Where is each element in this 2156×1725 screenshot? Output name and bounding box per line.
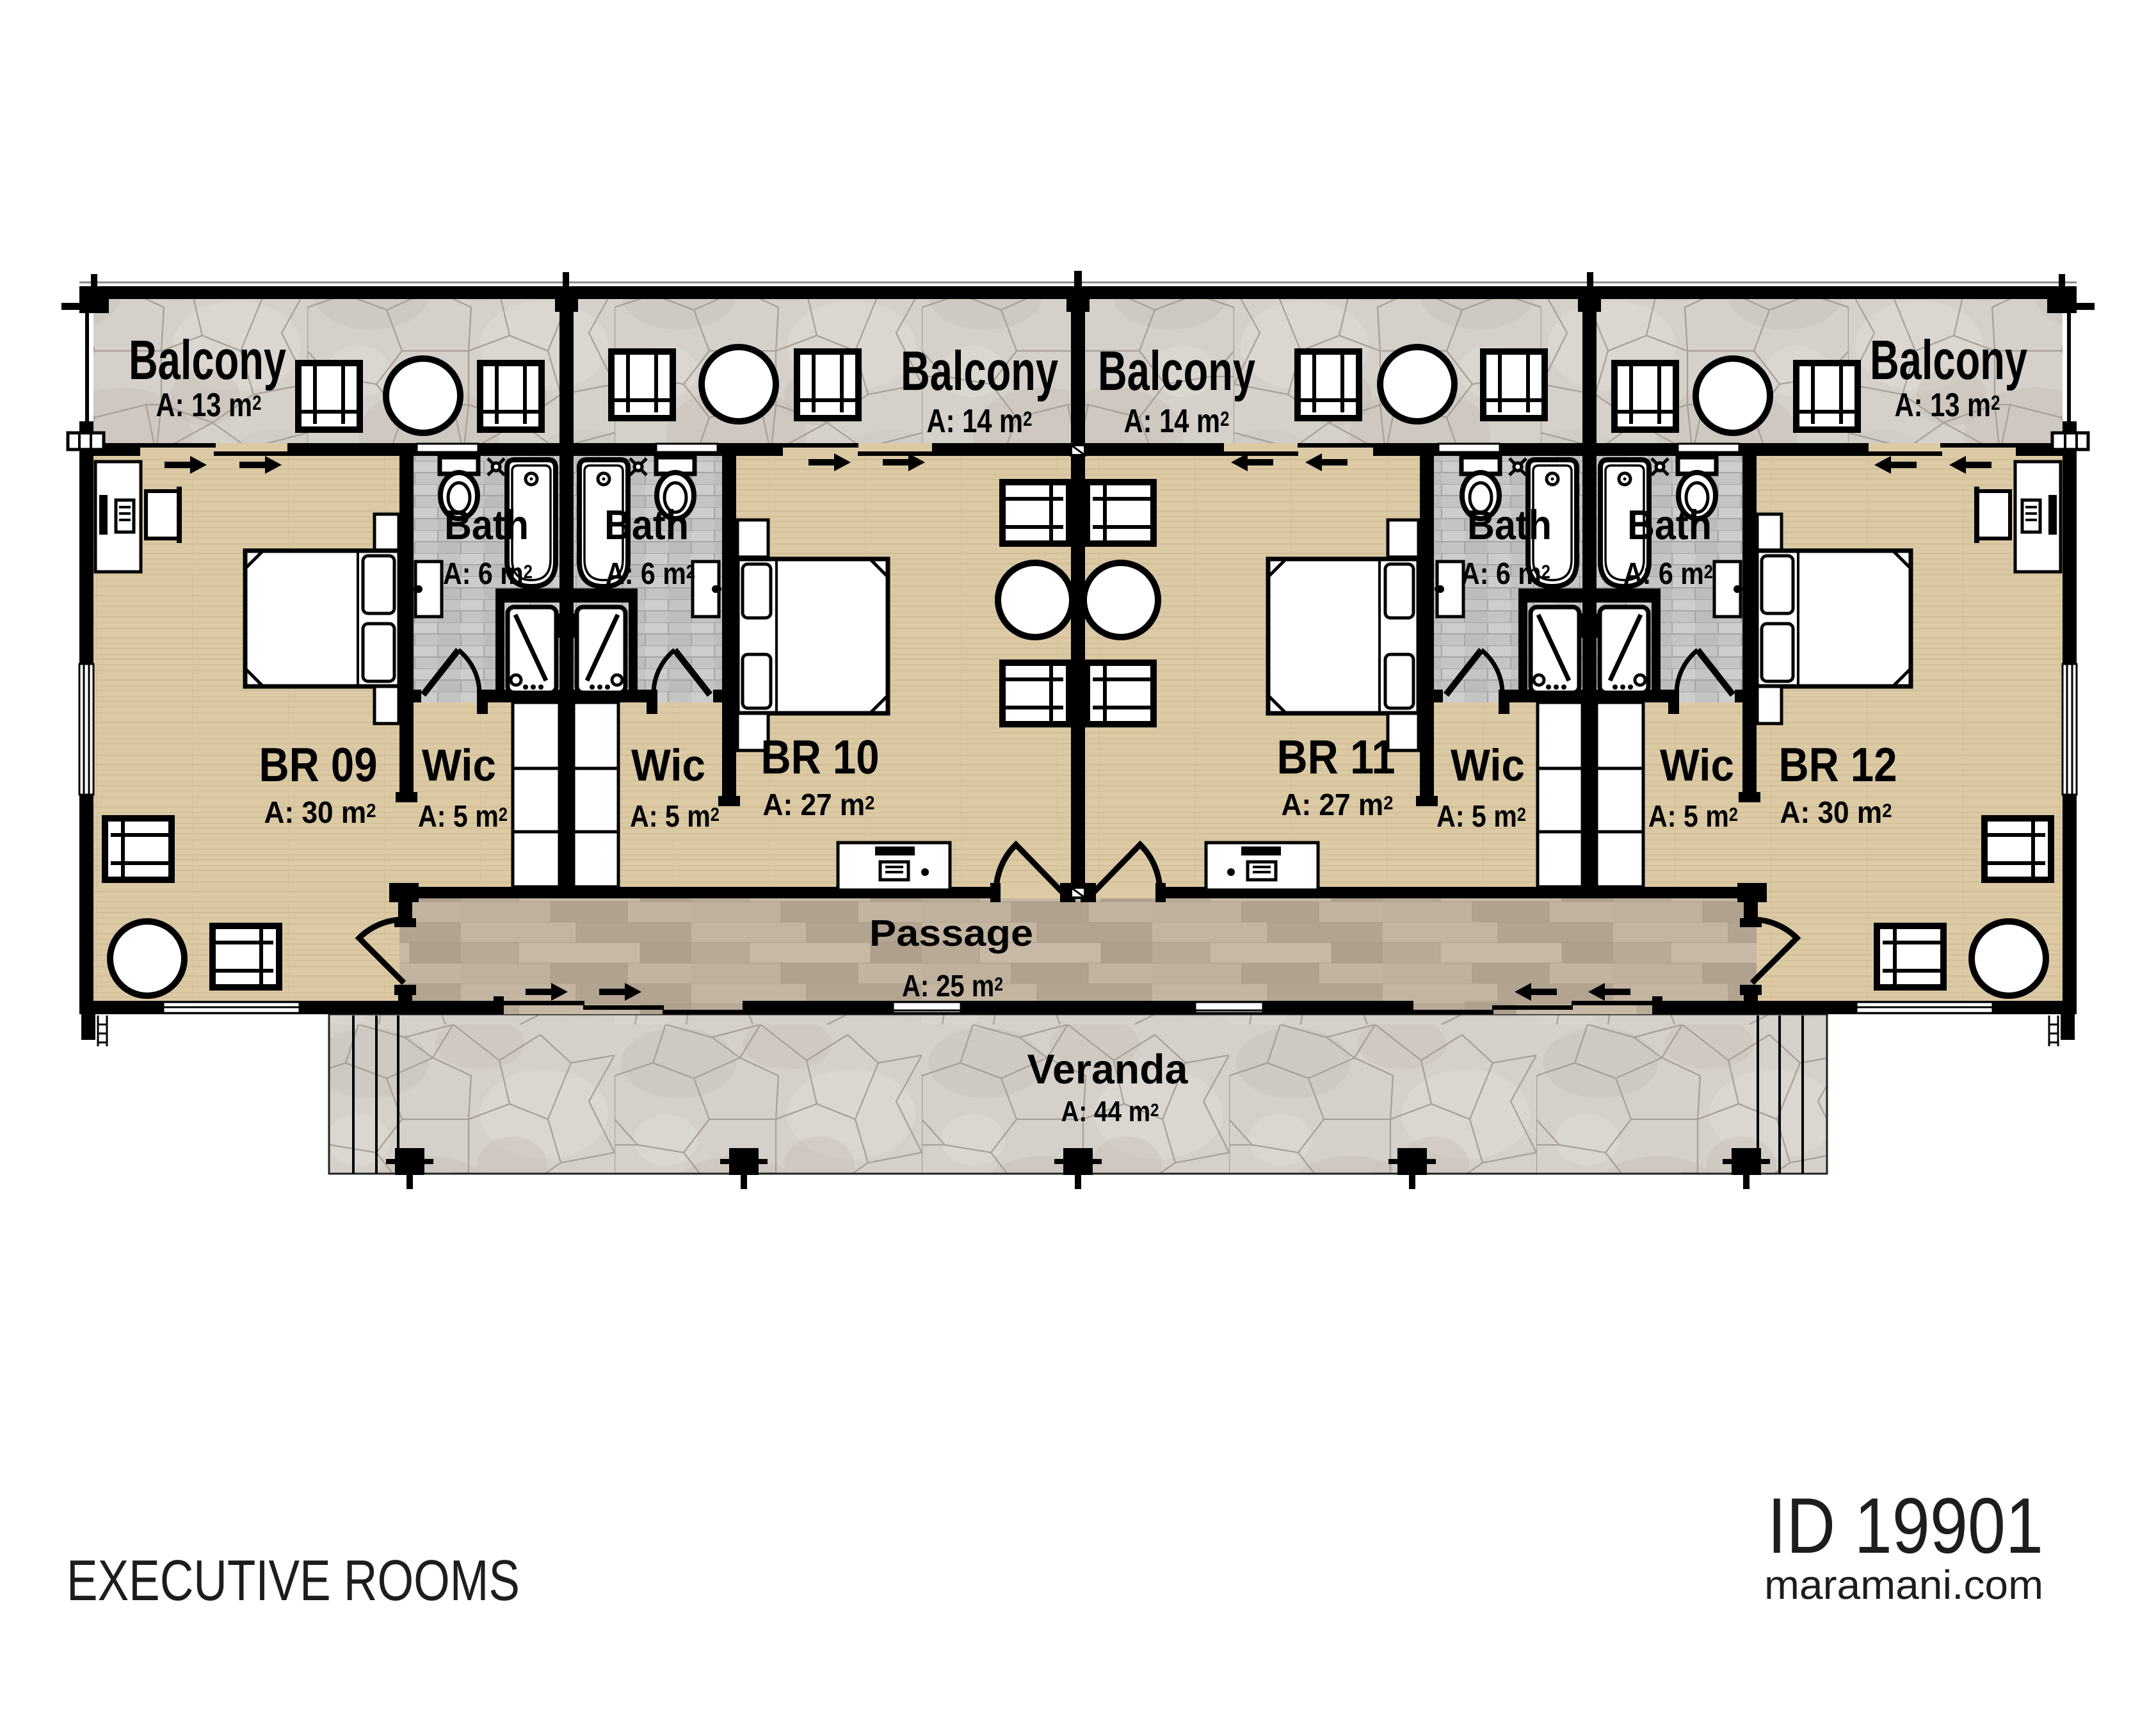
- svg-text:A: 30 m2: A: 30 m2: [264, 796, 376, 830]
- svg-text:A: 13 m2: A: 13 m2: [1895, 387, 2000, 424]
- svg-text:Bath: Bath: [1627, 501, 1712, 548]
- svg-text:A: 5 m2: A: 5 m2: [1648, 800, 1738, 834]
- svg-text:A: 5 m2: A: 5 m2: [418, 800, 508, 834]
- svg-text:A: 5 m2: A: 5 m2: [1436, 800, 1526, 834]
- svg-text:Balcony: Balcony: [1098, 340, 1255, 402]
- svg-text:A: 6 m2: A: 6 m2: [1461, 557, 1550, 591]
- svg-text:ID 19901: ID 19901: [1767, 1482, 2043, 1570]
- svg-text:Wic: Wic: [422, 740, 496, 790]
- svg-text:A: 14 m2: A: 14 m2: [927, 403, 1033, 440]
- svg-text:A: 6 m2: A: 6 m2: [443, 557, 533, 591]
- svg-text:Balcony: Balcony: [901, 340, 1058, 402]
- svg-text:Wic: Wic: [631, 740, 705, 790]
- svg-text:Bath: Bath: [604, 501, 689, 548]
- svg-text:A: 14 m2: A: 14 m2: [1124, 403, 1230, 440]
- svg-text:Bath: Bath: [444, 501, 529, 548]
- svg-text:Balcony: Balcony: [129, 329, 286, 391]
- svg-text:A: 6 m2: A: 6 m2: [1623, 557, 1713, 591]
- svg-text:BR 12: BR 12: [1779, 738, 1897, 791]
- svg-text:BR 09: BR 09: [259, 738, 378, 791]
- svg-text:Balcony: Balcony: [1870, 329, 2027, 391]
- svg-text:A: 27 m2: A: 27 m2: [763, 788, 875, 822]
- svg-text:A: 25 m2: A: 25 m2: [902, 969, 1003, 1003]
- svg-text:A: 6 m2: A: 6 m2: [606, 557, 695, 591]
- svg-text:BR 10: BR 10: [761, 730, 880, 784]
- svg-text:maramani.com: maramani.com: [1764, 1562, 2043, 1608]
- svg-text:Bath: Bath: [1467, 501, 1552, 548]
- svg-text:A: 44 m2: A: 44 m2: [1061, 1095, 1159, 1128]
- svg-text:A: 27 m2: A: 27 m2: [1282, 788, 1394, 822]
- svg-text:A: 13 m2: A: 13 m2: [156, 387, 262, 424]
- svg-text:Passage: Passage: [869, 912, 1033, 954]
- svg-text:BR 11: BR 11: [1277, 730, 1396, 784]
- svg-text:Wic: Wic: [1660, 740, 1734, 790]
- svg-text:Veranda: Veranda: [1027, 1046, 1189, 1092]
- svg-text:Wic: Wic: [1451, 740, 1525, 790]
- svg-text:EXECUTIVE ROOMS: EXECUTIVE ROOMS: [67, 1549, 520, 1613]
- svg-text:A: 30 m2: A: 30 m2: [1780, 796, 1892, 830]
- svg-text:A: 5 m2: A: 5 m2: [630, 800, 720, 834]
